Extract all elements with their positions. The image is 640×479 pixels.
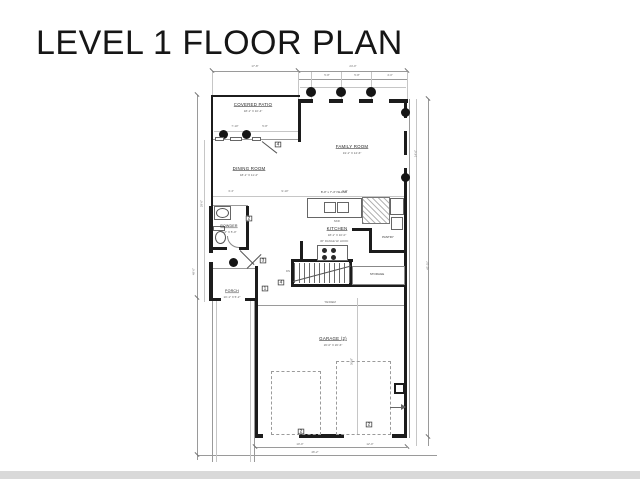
- wall-notch: [394, 383, 405, 394]
- dim-line-top-2: [298, 79, 408, 80]
- dim-text: 10'-0": [288, 443, 312, 446]
- dim-text: 46'-2": [303, 451, 327, 454]
- burner-icon: [322, 255, 327, 260]
- driveway-edge-3: [250, 301, 251, 462]
- sink-basin-icon: [324, 202, 336, 213]
- column-icon: [229, 258, 238, 267]
- dim-text: 3'-4": [219, 190, 243, 193]
- wall-patio-left: [211, 95, 213, 140]
- room-label-kitchen: KITCHEN: [299, 226, 376, 231]
- dim-line-top-3: [300, 87, 406, 88]
- tandem-line: [258, 305, 404, 306]
- room-label-storage: STORAGE: [348, 273, 407, 276]
- room-dims-porch: 10'-1" X 5'-2": [203, 296, 262, 299]
- room-dims-garage: 20'-0" X 20'-6": [304, 344, 363, 347]
- window-icon: [230, 137, 242, 141]
- sink-label: SINK: [325, 220, 349, 223]
- porch-top-line: [212, 268, 258, 269]
- car-space-outline: [336, 361, 391, 435]
- burner-icon: [331, 248, 336, 253]
- keynote-garage-door-right: 2: [366, 422, 372, 428]
- dim-text: 24'-0": [341, 65, 365, 68]
- window-gap: [343, 99, 359, 103]
- dim-text-vertical: 30'-8": [351, 350, 354, 374]
- keynote-stairs: 4: [278, 280, 284, 286]
- wall-pantry-c: [369, 250, 405, 253]
- dim-text: 4'-0": [378, 74, 402, 77]
- room-dims-family-room: 19'-1" X 14'-6": [323, 152, 382, 155]
- window-gap: [404, 118, 407, 131]
- dim-text: 5'-8": [345, 74, 369, 77]
- wall-patio-right: [298, 99, 301, 142]
- tandem-label: TANDEM: [318, 301, 342, 304]
- room-dims-powder: 6'-2" X 5'-0": [200, 231, 259, 234]
- keynote-patio-door: 4: [275, 142, 281, 148]
- page-title: LEVEL 1 FLOOR PLAN: [36, 24, 403, 63]
- dim-text: 5'-8": [315, 74, 339, 77]
- column-icon: [242, 130, 251, 139]
- car-space-outline: [271, 371, 321, 435]
- window-icon: [215, 137, 224, 141]
- dim-text: 7'-10": [223, 125, 247, 128]
- room-label-dining-room: DINING ROOM: [211, 166, 288, 171]
- wall-patio-top: [212, 95, 300, 97]
- dim-line-bottom-1: [255, 447, 407, 448]
- window-gap: [404, 155, 407, 168]
- room-label-porch: PORCH: [201, 289, 264, 293]
- driveway-edge-2: [216, 301, 217, 462]
- dim-text: 9'-8": [333, 190, 357, 193]
- dim-ext-a: [212, 71, 213, 96]
- stairs-dn-label: DN: [276, 270, 300, 273]
- dim-text-vertical: 43'-10": [427, 254, 430, 278]
- room-label-pantry: PANTRY: [359, 236, 418, 239]
- room-dims-kitchen: 18'-1" X 10'-0": [308, 234, 367, 237]
- window-gap: [373, 99, 389, 103]
- dim-text: 9'-10": [273, 190, 297, 193]
- column-icon: [401, 173, 410, 182]
- column-icon: [366, 87, 376, 97]
- room-label-covered-patio: COVERED PATIO: [215, 102, 292, 107]
- footer-band: [0, 471, 640, 479]
- dim-line-left-inner: [204, 140, 205, 302]
- window-gap: [209, 253, 213, 262]
- right-wall-face-line: [409, 99, 410, 438]
- column-icon: [401, 108, 410, 117]
- driveway-edge-1: [212, 301, 213, 462]
- room-label-powder: POWDER: [198, 224, 261, 228]
- fridge-icon: [390, 198, 404, 215]
- keynote-powder-door: 2: [246, 216, 252, 222]
- dim-line-bottom-2: [197, 455, 437, 456]
- cabinet-icon: [391, 217, 403, 230]
- dim-text-vertical: 48'-0": [193, 260, 196, 284]
- burner-icon: [331, 255, 336, 260]
- column-icon: [336, 87, 346, 97]
- dim-line-left-outer: [197, 95, 198, 460]
- keynote-garage-door-left: 2: [298, 429, 304, 435]
- window-gap: [313, 99, 329, 103]
- dim-text: 17'-8": [243, 65, 267, 68]
- burner-icon: [322, 248, 327, 253]
- lavatory-icon: [216, 208, 229, 218]
- wall-left-mid: [211, 140, 213, 206]
- wall-kitchen-left: [300, 241, 303, 261]
- dim-text: 5'-8": [253, 125, 277, 128]
- counter-hatch: [362, 197, 390, 224]
- room-dims-dining-room: 18'-1" X 11'-2": [220, 174, 279, 177]
- window-icon: [252, 137, 261, 141]
- dim-ext-c: [407, 71, 408, 99]
- room-label-family-room: FAMILY ROOM: [314, 144, 391, 149]
- keynote-entry-door: 3: [260, 258, 266, 264]
- keynote-porch: 1: [262, 286, 268, 292]
- sink-basin-icon: [337, 202, 349, 213]
- dim-text-vertical: 29'-0": [201, 192, 204, 216]
- room-label-garage: GARAGE (2): [295, 336, 372, 341]
- column-icon: [306, 87, 316, 97]
- room-dims-covered-patio: 18'-1" X 10'-4": [224, 110, 283, 113]
- dim-text-vertical: 14'-6": [415, 142, 418, 166]
- dim-line-top: [212, 71, 408, 72]
- range-label: 36" RANGE W/ HOOD: [320, 240, 344, 243]
- entry-arrow-icon: [401, 404, 406, 410]
- dim-text: 12'-0": [358, 443, 382, 446]
